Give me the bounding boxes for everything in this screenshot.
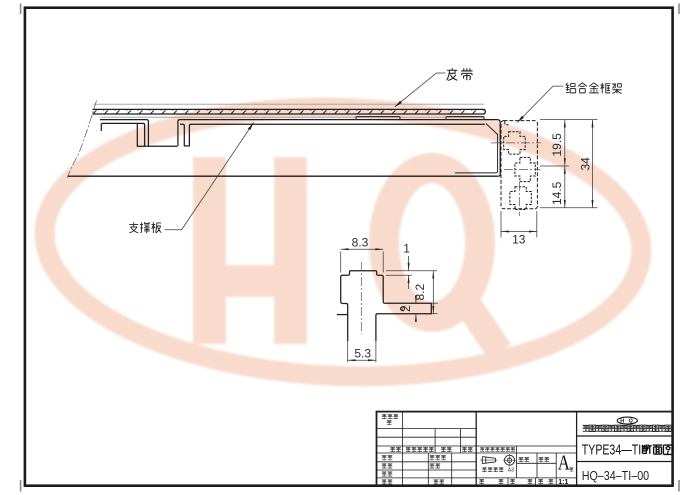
svg-text:HQ–34–TI–00: HQ–34–TI–00 xyxy=(582,469,650,483)
svg-text:19.5: 19.5 xyxy=(550,133,564,157)
svg-text:14.5: 14.5 xyxy=(550,181,564,205)
svg-text:1:1: 1:1 xyxy=(558,479,568,486)
svg-text:5.3: 5.3 xyxy=(354,347,371,361)
svg-text:34: 34 xyxy=(579,157,593,171)
svg-text:2: 2 xyxy=(399,305,413,312)
svg-text:A: A xyxy=(558,452,570,475)
svg-text:TYPE34—TI: TYPE34—TI xyxy=(582,442,641,458)
svg-text:8.3: 8.3 xyxy=(352,236,369,250)
svg-text:1: 1 xyxy=(403,242,410,256)
svg-text:A3: A3 xyxy=(508,468,514,474)
svg-text:H Q: H Q xyxy=(620,419,634,425)
svg-text:13: 13 xyxy=(512,233,526,247)
svg-text:8.2: 8.2 xyxy=(413,283,427,300)
